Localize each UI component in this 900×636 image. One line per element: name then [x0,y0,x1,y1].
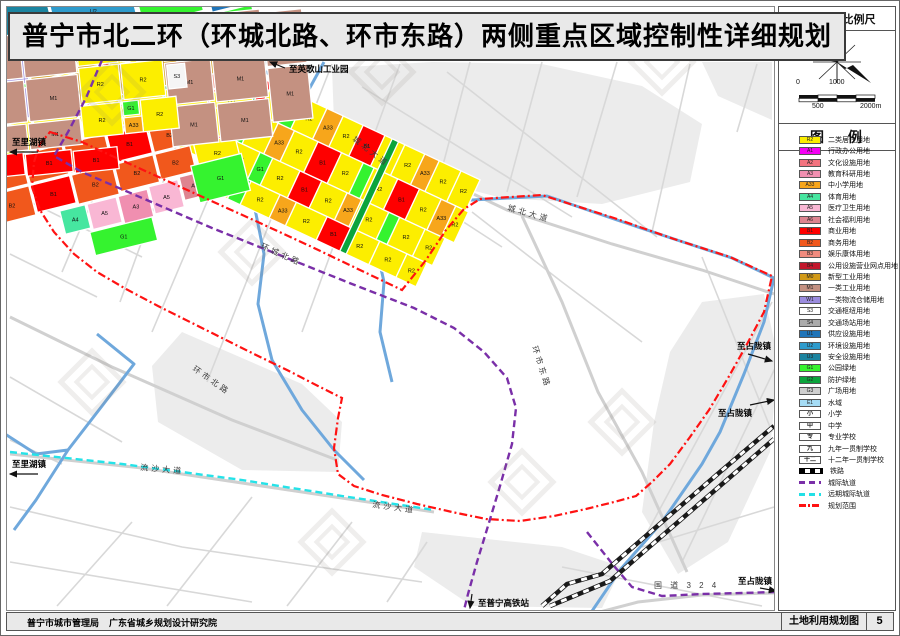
legend-label: 专业学校 [828,432,856,442]
legend-item: 九九年一贯制学校 [799,443,893,454]
legend-item: G1公园绿地 [799,363,893,374]
legend-label: 一类工业用地 [828,283,870,293]
parcel-code: R2 [342,171,349,177]
legend-label: 行政办公用地 [828,146,870,156]
legend-label: 文化设施用地 [828,158,870,168]
legend-label: 铁路 [830,466,844,476]
legend-label: 商业用地 [828,226,856,236]
direction-label: 至里湖镇 [12,137,47,147]
legend-item: 铁路 [799,466,893,477]
legend-item: G3广场用地 [799,386,893,397]
sheet-name: 土地利用规划图 [781,613,867,630]
parcel-M1[interactable] [7,80,28,128]
parcel-code: M1 [286,91,294,97]
road [167,497,252,606]
parcel-code: B2 [172,161,179,167]
legend-label: 远期城际轨道 [828,489,870,499]
direction-label: 至英歌山工业园 [289,64,349,74]
legend-item: R2二类居住用地 [799,134,893,145]
parcel-code: A33 [278,208,288,214]
land-use-map[interactable]: R2B1A33R2B1A5B3B1B1R2G1R2A33R2B1R2R2A33R… [7,7,775,611]
direction-label: 至里湖镇 [12,459,47,469]
direction-arrow-icon [760,588,775,591]
road-label: 流沙大道 [140,462,185,476]
parcel-code: R2 [303,219,310,225]
parcel-code: B1 [398,197,405,203]
footer-bar: 普宁市城市管理局 广东省城乡规划设计研究院 土地利用规划图 5 [6,612,894,631]
legend-label: 规划范围 [828,501,856,511]
legend-item: M0新型工业用地 [799,271,893,282]
legend-item: A6社会福利用地 [799,214,893,225]
parcel-code: B1 [93,158,100,164]
legend-item: S3交通枢纽用地 [799,306,893,317]
legend-item: 城际轨道 [799,477,893,488]
parcel-code: A4 [72,218,79,224]
legend-line-sample [799,493,821,496]
legend-line-sample [799,481,821,484]
road-label: 城北大道 [506,202,551,224]
legend-item: W1一类物流仓储用地 [799,294,893,305]
legend-item: 规划范围 [799,500,893,511]
parcel-code: M1 [190,123,198,129]
legend-swatch: 专 [799,433,821,441]
legend-label: 公用设施营业网点用地 [828,261,898,271]
parcel-code: A3 [133,204,140,210]
parcel-code: R2 [439,179,446,185]
legend-item: B4公用设施营业网点用地 [799,260,893,271]
road [472,212,642,342]
legend-item: U1供应设施用地 [799,328,893,339]
legend-swatch: B1 [799,227,821,235]
legend-label: 公园绿地 [828,363,856,373]
watermark-logo-icon [301,511,363,573]
parcel-code: B2 [134,171,141,177]
legend-swatch: A33 [799,181,821,189]
direction-label: 至普宁高铁站 [478,598,530,608]
legend-label: 商务用地 [828,238,856,248]
legend-item: 十二十二年一贯制学校 [799,454,893,465]
legend-swatch: E1 [799,399,821,407]
legend-item: A33中小学用地 [799,180,893,191]
direction-label: 至占陇镇 [737,341,772,351]
parcel-code: A33 [420,171,430,177]
parcel-code: B1 [319,161,326,167]
parcel-code: R2 [408,268,415,274]
direction-label: 至占陇镇 [738,576,773,586]
parcel-code: B1 [46,161,53,167]
legend-label: 小学 [828,409,842,419]
parcel-code: B1 [301,188,308,194]
scale-0: 0 [796,79,800,86]
legend-label: 安全设施用地 [828,352,870,362]
legend-swatch: W1 [799,296,821,304]
legend-label: 体育用地 [828,192,856,202]
legend-swatch: R2 [799,136,821,144]
parcel-code: A33 [343,208,353,214]
legend-swatch: B2 [799,239,821,247]
legend-item: U3安全设施用地 [799,351,893,362]
plan-sheet: R2B1A33R2B1A5B3B1B1R2G1R2A33R2B1R2R2A33R… [0,0,900,636]
parcel-code: A33 [323,126,333,132]
legend-swatch: G2 [799,376,821,384]
legend-label: 医疗卫生用地 [828,203,870,213]
parcel-code: S3 [173,74,180,80]
legend-label: 交通枢纽用地 [828,306,870,316]
legend-item: A4体育用地 [799,191,893,202]
parcel-code: R2 [404,163,411,169]
legend-item: U2环境设施用地 [799,340,893,351]
legend-item: B3娱乐康体用地 [799,248,893,259]
legend-label: 社会福利用地 [828,215,870,225]
legend-item: A2文化设施用地 [799,157,893,168]
major-road [10,454,434,512]
parcel-code: R2 [384,257,391,263]
watermark-logo-icon [61,351,123,413]
legend-swatch: A6 [799,216,821,224]
parcel-code: G1 [217,176,224,182]
agency-2: 广东省城乡规划设计研究院 [109,616,217,629]
legend-swatch: 九 [799,445,821,453]
scale-500: 500 [812,103,824,110]
legend-label: 中小学用地 [828,180,863,190]
legend-item: E1水域 [799,397,893,408]
parcel-code: R2 [257,198,264,204]
legend-label: 教育科研用地 [828,169,870,179]
legend-item: M1一类工业用地 [799,283,893,294]
legend-item: A1行政办公用地 [799,145,893,156]
legend-swatch: A1 [799,147,821,155]
parcel-code: B2 [92,183,99,189]
legend-swatch: B4 [799,262,821,270]
built-up-area [642,294,775,574]
legend-item: 小小学 [799,409,893,420]
legend-label: 九年一贯制学校 [828,444,877,454]
legend-line-sample [799,504,821,507]
built-up-area [414,532,622,608]
watermark-logo-icon [491,451,553,513]
legend-swatch: G3 [799,387,821,395]
legend-item: B1商业用地 [799,226,893,237]
parcel-code: A33 [129,123,139,129]
legend-swatch: M1 [799,284,821,292]
legend-label: 防护绿地 [828,375,856,385]
legend-label: 环境设施用地 [828,341,870,351]
map-viewport[interactable]: R2B1A33R2B1A5B3B1B1R2G1R2A33R2B1R2R2A33R… [6,6,775,611]
legend-label: 二类居住用地 [828,135,870,145]
parcel-code: R2 [356,244,363,250]
road [10,254,97,297]
legend-label: 一类物流仓储用地 [828,295,884,305]
legend-swatch: S4 [799,319,821,327]
watermark-logo-icon [591,391,653,453]
road-label: 环市东路 [530,345,553,390]
legend-swatch: U1 [799,330,821,338]
legend-line-sample [799,468,823,474]
parcel-code: G1 [256,167,263,173]
parcel-code: A5 [101,211,108,217]
parcel-code: R2 [156,112,163,118]
legend-item: 远期城际轨道 [799,489,893,500]
legend-label: 十二年一贯制学校 [828,455,884,465]
legend-label: 中学 [828,421,842,431]
page-number: 5 [866,613,893,630]
legend-label: 供应设施用地 [828,329,870,339]
parcel-code: R2 [277,176,284,182]
road [387,542,427,602]
scale-2000: 2000m [860,103,881,110]
road [10,562,252,602]
plan-title: 普宁市北二环（环城北路、环市东路）两侧重点区域控制性详细规划 [8,12,846,61]
legend-swatch: 十二 [799,456,821,464]
legend-item: B2商务用地 [799,237,893,248]
legend-label: 广场用地 [828,386,856,396]
river [14,334,134,530]
agency-1: 普宁市城市管理局 [27,616,99,629]
legend-swatch: 小 [799,410,821,418]
legend-label: 新型工业用地 [828,272,870,282]
parcel-code: R2 [296,150,303,156]
legend-swatch: A5 [799,204,821,212]
legend-swatch: B3 [799,250,821,258]
legend-swatch: U2 [799,342,821,350]
scale-1000: 1000 [829,79,845,86]
legend-item: A3教育科研用地 [799,168,893,179]
parcel-code: R2 [365,218,372,224]
parcel-code: R2 [214,151,221,157]
legend-label: 水域 [828,398,842,408]
parcel-code: A33 [274,140,284,146]
legend-label: 交通场站用地 [828,318,870,328]
parcel-code: A5 [163,195,170,201]
legend-swatch: U3 [799,353,821,361]
parcel-code: B1 [330,232,337,238]
legend-swatch: M0 [799,273,821,281]
parcel-code: B1 [50,192,57,198]
legend-item: A5医疗卫生用地 [799,203,893,214]
parcel-code: M1 [241,118,249,124]
built-up-area [702,62,772,120]
road-label: 国 道 3 2 4 [654,580,719,590]
legend-item: 专专业学校 [799,431,893,442]
parcel-code: G1 [120,234,127,240]
parcel-code: A33 [436,216,446,222]
direction-label: 至占陇镇 [718,408,753,418]
legend-item: S4交通场站用地 [799,317,893,328]
parcel-code: B1 [126,142,133,148]
legend-item: G2防护绿地 [799,374,893,385]
legend-item: 中中学 [799,420,893,431]
road-label: 流沙大道 [372,499,417,515]
legend-swatch: G1 [799,364,821,372]
legend-swatch: A2 [799,159,821,167]
parcel-code: R2 [343,134,350,140]
legend-label: 城际轨道 [828,478,856,488]
legend-swatch: A3 [799,170,821,178]
parcel-code: R2 [403,235,410,241]
legend-list: R2二类居住用地A1行政办公用地A2文化设施用地A3教育科研用地A33中小学用地… [779,129,895,610]
legend-swatch: A4 [799,193,821,201]
legend-label: 娱乐康体用地 [828,249,870,259]
road [57,522,132,606]
parcel-code: R2 [325,199,332,205]
parcel-code: R2 [460,189,467,195]
legend-swatch: 中 [799,422,821,430]
parcel-code: M1 [237,76,245,82]
parcel-code: M1 [50,96,58,102]
parcel-code: R2 [140,78,147,84]
legend-swatch: S3 [799,307,821,315]
side-panel: 风玫瑰及比例尺 N 0 1000 500 [778,6,896,611]
parcel-code: R2 [420,208,427,214]
parcel-code: B2 [9,203,16,209]
